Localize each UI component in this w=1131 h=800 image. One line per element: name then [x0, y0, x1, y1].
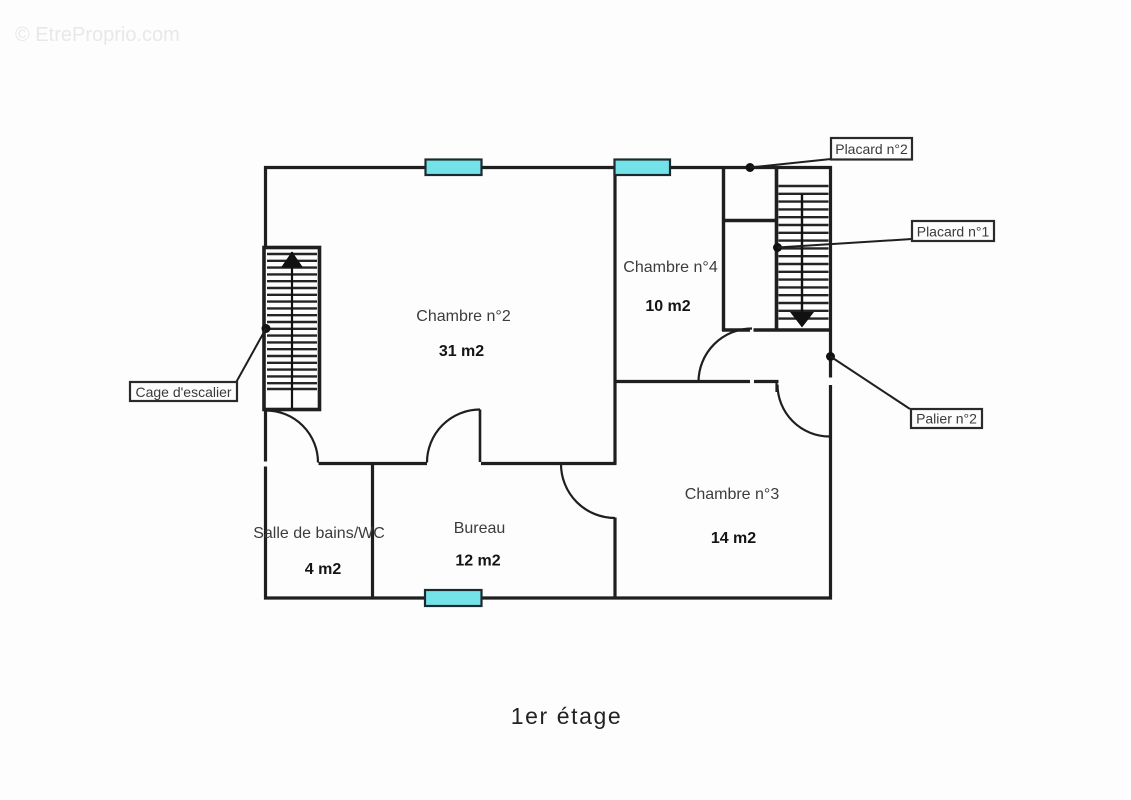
svg-text:14 m2: 14 m2: [711, 530, 756, 547]
svg-text:Bureau: Bureau: [454, 520, 506, 537]
svg-text:1er étage: 1er étage: [511, 703, 623, 729]
svg-text:Salle de bains/WC: Salle de bains/WC: [253, 525, 385, 542]
svg-text:Chambre n°3: Chambre n°3: [685, 486, 780, 503]
svg-text:Palier n°2: Palier n°2: [916, 411, 977, 427]
svg-text:4 m2: 4 m2: [305, 561, 342, 578]
svg-text:12 m2: 12 m2: [455, 553, 500, 570]
svg-text:© EtreProprio.com: © EtreProprio.com: [15, 24, 180, 46]
svg-text:Chambre n°4: Chambre n°4: [623, 259, 718, 276]
svg-text:Cage d'escalier: Cage d'escalier: [135, 384, 231, 400]
svg-text:31 m2: 31 m2: [439, 343, 484, 360]
svg-text:Chambre n°2: Chambre n°2: [416, 308, 511, 325]
svg-text:10 m2: 10 m2: [645, 298, 690, 315]
svg-text:Placard n°1: Placard n°1: [917, 224, 990, 240]
svg-text:Placard n°2: Placard n°2: [835, 141, 908, 157]
